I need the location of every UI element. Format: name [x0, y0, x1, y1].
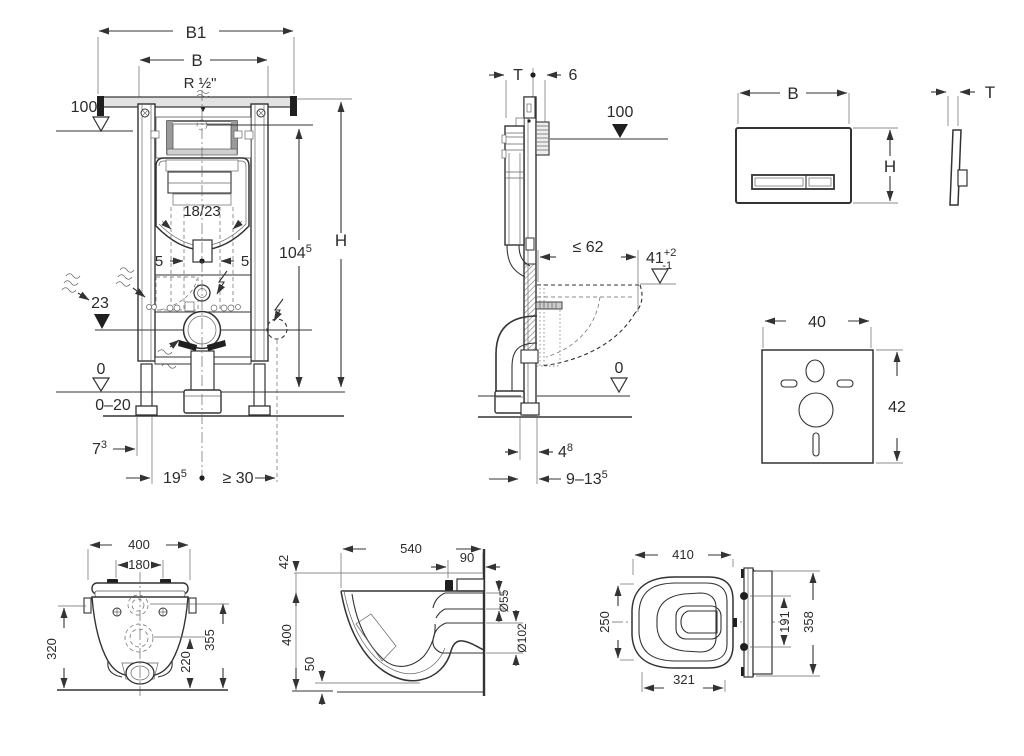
dim-5-right: 5 — [241, 253, 249, 270]
dim-h: H — [335, 231, 347, 250]
dim-19-5: 195 — [163, 468, 187, 487]
dim-wc-dia102: Ø102 — [515, 623, 529, 653]
dim-level-100: 100 — [71, 99, 98, 116]
dim-plate-b: B — [787, 84, 798, 103]
dim-wc-358: 358 — [801, 611, 816, 633]
frame-front-view: B1 B R ½" 100 — [56, 23, 352, 487]
level-mark-icon — [93, 378, 109, 391]
level-mark-icon — [611, 378, 627, 392]
level-mark-icon — [652, 269, 668, 283]
technical-drawing-sheet: B1 B R ½" 100 — [0, 0, 1024, 756]
wc-shell-outline — [341, 591, 484, 681]
dim-pad-42: 42 — [888, 399, 906, 416]
flush-buttons — [752, 175, 834, 189]
dim-41: 41+2-1 — [646, 247, 676, 272]
dim-le-62: ≤ 62 — [572, 239, 603, 256]
dim-wc-220: 220 — [178, 651, 193, 673]
plate-end-left — [97, 96, 104, 116]
dim-level-100-side: 100 — [607, 104, 634, 121]
frame-side-view: T 6 100 — [478, 67, 676, 488]
sound-insulation-icon — [62, 274, 89, 300]
dim-wc-dia55: Ø55 — [497, 589, 511, 612]
wc-side-view: 540 90 42 400 50 Ø55 — [276, 541, 529, 705]
wc-dashed-outline — [537, 284, 642, 368]
dim-wc-42: 42 — [276, 555, 291, 569]
dim-9-13-5: 9–135 — [566, 469, 608, 488]
dim-104: 1045 — [279, 243, 312, 262]
dim-wc-400h: 400 — [279, 624, 294, 646]
dim-wc-400: 400 — [128, 537, 150, 552]
dim-water-connection: R ½" — [184, 75, 217, 92]
dim-wc-321: 321 — [673, 672, 695, 687]
dim-wc-320: 320 — [44, 638, 59, 660]
dim-floor-range: 0–20 — [95, 397, 131, 414]
wc-installation-dimension-drawing: B1 B R ½" 100 — [0, 0, 1024, 756]
dim-wc-410: 410 — [672, 547, 694, 562]
dim-floor-zero-side: 0 — [615, 360, 624, 377]
wc-rim-outline — [632, 577, 733, 668]
dim-wc-180: 180 — [128, 557, 150, 572]
dim-wc-50: 50 — [302, 657, 317, 671]
dim-plate-t: T — [985, 83, 995, 102]
dim-plate-h: H — [884, 157, 896, 176]
dim-b: B — [191, 51, 202, 70]
dim-b1: B1 — [186, 23, 207, 42]
dim-7-3: 73 — [92, 439, 107, 458]
dim-5-left: 5 — [155, 253, 163, 270]
dim-floor-zero: 0 — [97, 361, 106, 378]
sound-insulation-pad: 40 42 — [762, 314, 906, 463]
dim-wc-355: 355 — [202, 629, 217, 651]
plate-end-right — [290, 96, 297, 116]
wc-top-view: 410 250 191 358 321 — [597, 547, 820, 692]
level-mark-icon — [94, 314, 110, 329]
dim-4-8: 48 — [558, 442, 573, 461]
level-mark-icon — [612, 124, 628, 138]
dim-23: 23 — [91, 295, 109, 312]
flush-plate-front-view: B H — [736, 84, 898, 203]
dim-ge-30: ≥ 30 — [222, 470, 253, 487]
level-mark-icon — [93, 117, 109, 131]
dim-t: T — [513, 67, 523, 84]
dim-6: 6 — [569, 67, 578, 84]
wc-back-view: 400 180 320 355 — [44, 537, 229, 696]
dim-wc-540: 540 — [400, 541, 422, 556]
dim-wc-250: 250 — [597, 611, 612, 633]
dim-pad-40: 40 — [808, 314, 826, 331]
flush-plate-side-view: T — [931, 83, 995, 205]
dim-wc-191: 191 — [777, 611, 792, 633]
dim-wc-90: 90 — [460, 550, 474, 565]
electrical-outlet-placeholder — [267, 319, 287, 339]
electrical-icon — [274, 299, 283, 321]
